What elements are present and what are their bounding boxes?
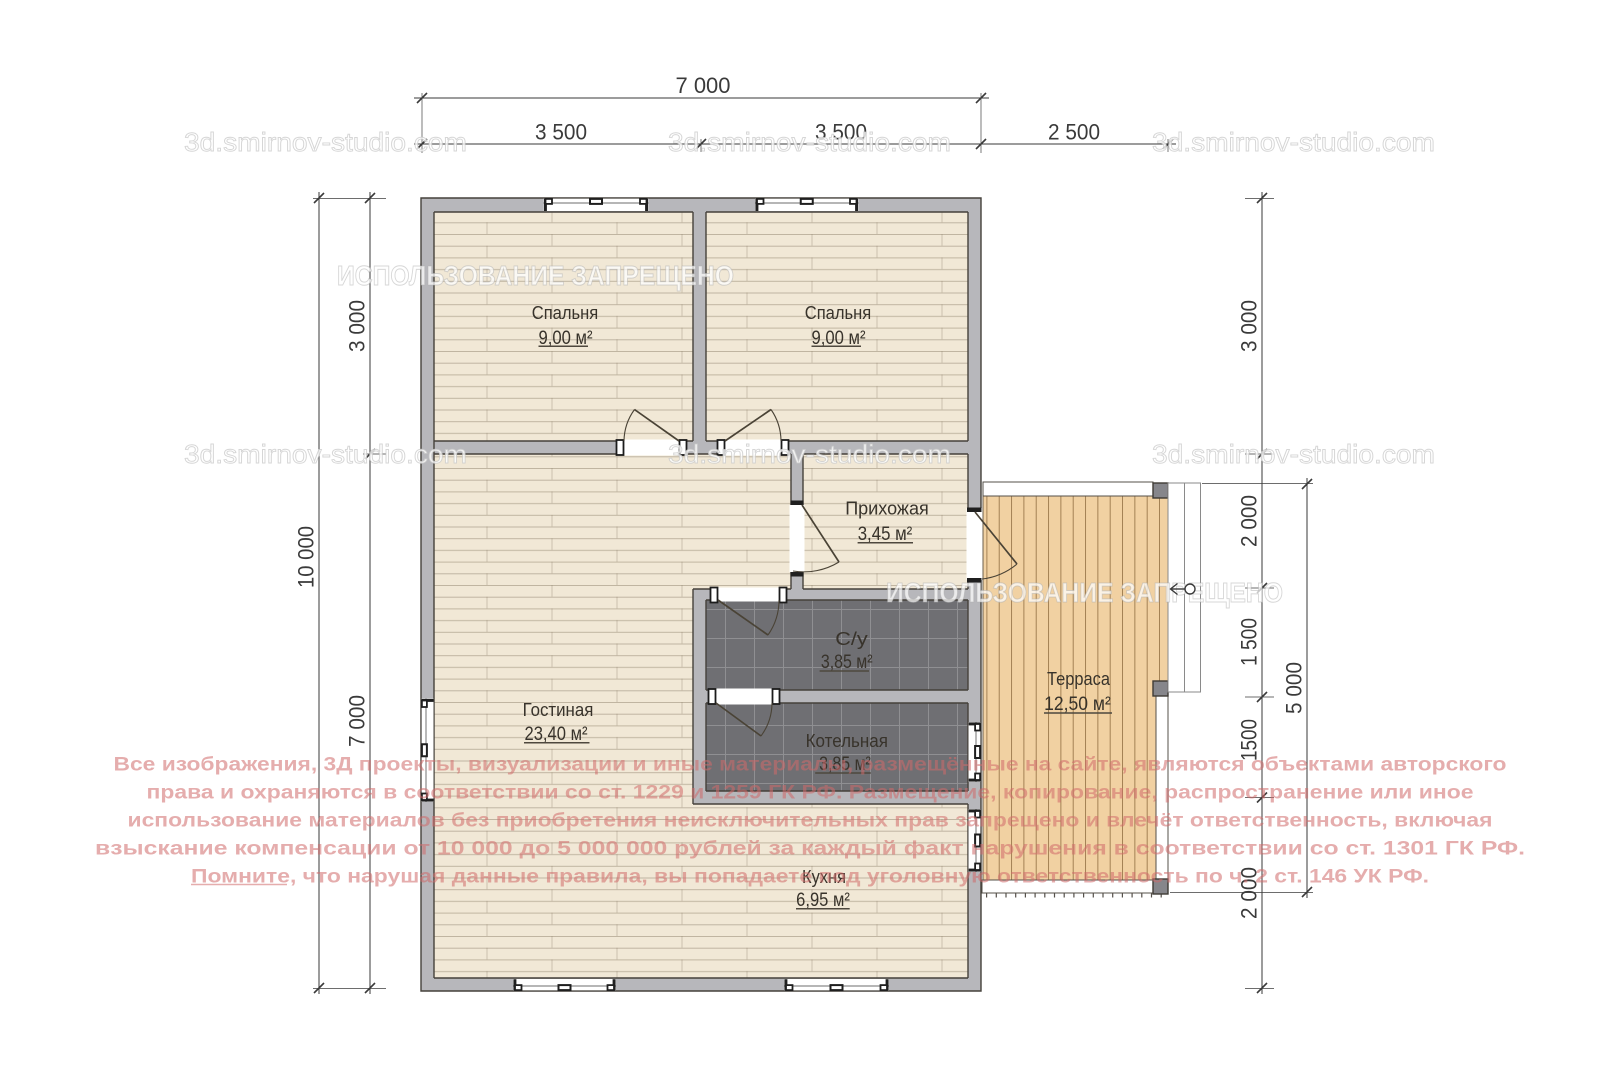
svg-text:12,50 м²: 12,50 м²: [1044, 693, 1111, 715]
svg-text:3d.smirnov-studio.com: 3d.smirnov-studio.com: [184, 439, 467, 469]
svg-text:10 000: 10 000: [294, 526, 319, 588]
svg-text:6,95 м²: 6,95 м²: [796, 889, 850, 911]
svg-text:3d.smirnov-studio.com: 3d.smirnov-studio.com: [1152, 127, 1435, 157]
svg-text:3d.smirnov-studio.com: 3d.smirnov-studio.com: [184, 127, 467, 157]
svg-text:Гостиная: Гостиная: [523, 699, 594, 720]
svg-text:использование материалов без п: использование материалов без приобретени…: [128, 810, 1493, 832]
svg-text:7 000: 7 000: [345, 695, 370, 747]
svg-text:23,40 м²: 23,40 м²: [525, 723, 588, 745]
svg-text:ИСПОЛЬЗОВАНИЕ ЗАПРЕЩЕНО: ИСПОЛЬЗОВАНИЕ ЗАПРЕЩЕНО: [886, 577, 1283, 608]
svg-text:3d.smirnov-studio.com: 3d.smirnov-studio.com: [668, 439, 951, 469]
svg-text:3,85 м²: 3,85 м²: [821, 651, 873, 673]
svg-text:права и охраняются в соответст: права и охраняются в соответствии со ст.…: [147, 782, 1474, 804]
svg-text:С/у: С/у: [835, 628, 868, 649]
svg-text:5 000: 5 000: [1282, 662, 1307, 714]
svg-text:2 500: 2 500: [1048, 120, 1100, 145]
svg-text:Спальня: Спальня: [805, 302, 872, 323]
svg-text:3d.smirnov-studio.com: 3d.smirnov-studio.com: [668, 127, 951, 157]
svg-text:Прихожая: Прихожая: [845, 498, 929, 519]
svg-text:ИСПОЛЬЗОВАНИЕ ЗАПРЕЩЕНО: ИСПОЛЬЗОВАНИЕ ЗАПРЕЩЕНО: [337, 260, 734, 291]
svg-text:Помните, что нарушая данные пр: Помните, что нарушая данные правила, вы …: [191, 866, 1429, 888]
svg-text:7 000: 7 000: [676, 73, 731, 98]
svg-text:Терраса: Терраса: [1047, 668, 1111, 689]
svg-text:3 000: 3 000: [1237, 300, 1262, 352]
svg-text:1 500: 1 500: [1237, 618, 1262, 666]
svg-text:3,45 м²: 3,45 м²: [858, 523, 913, 545]
svg-text:3d.smirnov-studio.com: 3d.smirnov-studio.com: [1152, 439, 1435, 469]
svg-text:Спальня: Спальня: [532, 302, 599, 323]
svg-text:3 500: 3 500: [535, 120, 587, 145]
svg-text:взыскание компенсации от 10 00: взыскание компенсации от 10 000 до 5 000…: [95, 838, 1525, 860]
svg-text:Все изображения, 3Д проекты, в: Все изображения, 3Д проекты, визуализаци…: [114, 754, 1507, 776]
svg-text:Котельная: Котельная: [806, 730, 888, 751]
svg-text:3 000: 3 000: [345, 300, 370, 352]
svg-text:2 000: 2 000: [1237, 495, 1262, 547]
